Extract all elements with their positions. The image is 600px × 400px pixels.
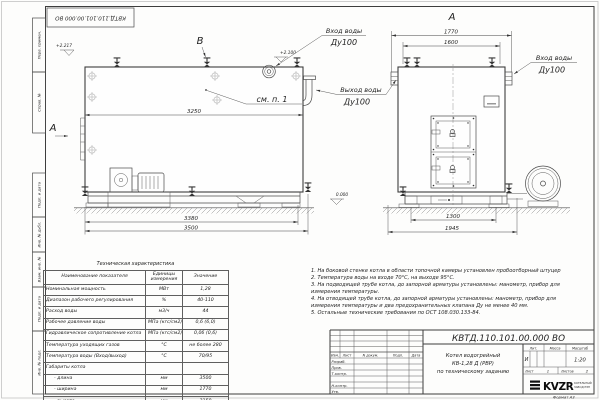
dim-1770: 1770 — [444, 30, 458, 36]
col-list: Лист — [342, 353, 353, 357]
table-row: Габариты котла — [44, 363, 229, 374]
dim-1300: 1300 — [446, 214, 460, 220]
tech-characteristics: Техническая характеристика Наименование … — [43, 261, 228, 400]
table-row: Номинальная мощностьМВт1,28 — [44, 285, 229, 296]
fan-front — [507, 166, 561, 207]
frame-label: Инв. № дубл. — [37, 222, 42, 248]
doc-number: КВТД.110.101.00.000 ВО — [452, 334, 565, 344]
note-item: 4. На отводящей трубе котла, до запорной… — [311, 296, 573, 310]
note-item: 1. На боковой стенке котла в области топ… — [311, 268, 573, 275]
dim-3250: 3250 — [187, 109, 201, 115]
frame-label: Подп. и дата — [37, 295, 42, 322]
stamp-doc-number: КВТД.110.101.00.000 ВО — [54, 15, 125, 21]
col-podp: Подп. — [393, 353, 403, 357]
product-name-2: КВ-1,28 Д (РВР) — [452, 361, 494, 367]
dim-3380: 3380 — [184, 216, 198, 222]
tech-table-title: Техническая характеристика — [43, 261, 228, 268]
dim-3500: 3500 — [184, 225, 198, 231]
view-a-label: А — [49, 123, 57, 134]
massa-label: Масса — [550, 346, 561, 350]
role-razrab: Разраб. — [332, 360, 346, 364]
table-row: Рабочее давление водыМПа (кгс/см2)0,6 (6… — [44, 318, 229, 329]
front-view: А — [330, 12, 577, 235]
note-item: 5. Остальные технические требования по О… — [311, 310, 573, 317]
outlet-dn: Ду100 — [343, 98, 370, 107]
frame-label: Взам. инв. № — [37, 257, 42, 283]
table-row: Температура уходящих газов°Сне более 280 — [44, 340, 229, 351]
col-izm: Изм. — [331, 353, 339, 357]
table-row: - высотамм2150 — [44, 396, 229, 400]
dim-1945: 1945 — [445, 226, 459, 232]
sheet-label: Лист — [524, 369, 535, 373]
frame-label: Перв. примен. — [37, 31, 42, 60]
frame-label: Справ. № — [37, 93, 42, 112]
elevation-ground: 0.000 — [336, 192, 349, 198]
logo-text: KVZR — [543, 381, 574, 393]
tech-header: Наименование показателя — [44, 271, 146, 285]
role-tkontr: Т.контр. — [332, 372, 348, 376]
technical-notes: 1. На боковой стенке котла в области топ… — [311, 268, 573, 317]
lit-label: Лит. — [529, 346, 538, 350]
scale-label: Масштаб — [572, 346, 588, 350]
scale-value: 1:20 — [574, 358, 586, 364]
inlet-front-label: Вход воды — [536, 54, 572, 62]
frame-label: Подп. и дата — [37, 181, 42, 208]
inlet-top-dn: Ду100 — [330, 38, 357, 47]
note-item: 3. На подводящей трубе котла, до запорно… — [311, 282, 573, 296]
company-line-2: ЗАВОД РЭП — [574, 385, 590, 389]
dim-1600: 1600 — [444, 40, 458, 46]
col-ndoc: N докум. — [363, 353, 379, 357]
table-row: Расход водым3/ч44 — [44, 307, 229, 318]
tech-table: Наименование показателя Единицы измерени… — [43, 270, 229, 400]
company-logo: KVZR КОТЕЛЬНЫЙ ЗАВОД РЭП — [530, 380, 592, 393]
elevation-top-mid: +2.100 — [280, 50, 296, 56]
sheets-label: Листов — [560, 369, 574, 373]
col-data: Дата — [411, 353, 421, 357]
elevation-top-left: +2.217 — [56, 43, 72, 49]
note-item: 2. Температура воды на входе 70°С, на вы… — [311, 275, 573, 282]
table-row: Диапазон рабочего регулирования%40-110 — [44, 296, 229, 307]
table-row: - длинамм3500 — [44, 374, 229, 385]
title-block: Изм. Лист N докум. Подп. Дата Разраб. Пр… — [330, 330, 594, 394]
table-row: Температура воды (Вход/выход)°С70/95 — [44, 352, 229, 363]
lit-value: И — [525, 357, 529, 363]
role-nkontr: Н.контр. — [332, 384, 348, 388]
view-b-label: В — [197, 36, 204, 47]
callout-see-item: см. п. 1 — [257, 95, 288, 104]
sheet-value: 1 — [547, 369, 549, 374]
drawing-sheet: Перв. примен. Справ. № Подп. и дата Инв.… — [0, 0, 600, 400]
table-row: Гидравлическое сопротивление котлаМПа (к… — [44, 329, 229, 340]
inlet-top-label: Вход воды — [326, 27, 362, 35]
side-view: 3250 3380 3500 В А +2.217 +2.100 см. п. … — [49, 27, 396, 235]
view-a-title: А — [448, 12, 456, 23]
product-name-1: Котел водогрейный — [446, 353, 501, 359]
role-prov: Пров. — [332, 366, 342, 370]
role-utv: Утв. — [332, 390, 340, 394]
outlet-label: Выход воды — [340, 86, 381, 94]
frame-label: Инв. № подл. — [37, 349, 42, 375]
table-row: - ширинамм1770 — [44, 385, 229, 396]
format-note: Формат А3 — [553, 395, 575, 400]
tech-header: Единицы измерения — [146, 271, 183, 285]
sheets-value: 2 — [586, 369, 589, 374]
inlet-front-dn: Ду100 — [538, 66, 565, 75]
product-name-3: по техническому заданию — [437, 369, 510, 375]
tech-header: Значение — [183, 271, 229, 285]
